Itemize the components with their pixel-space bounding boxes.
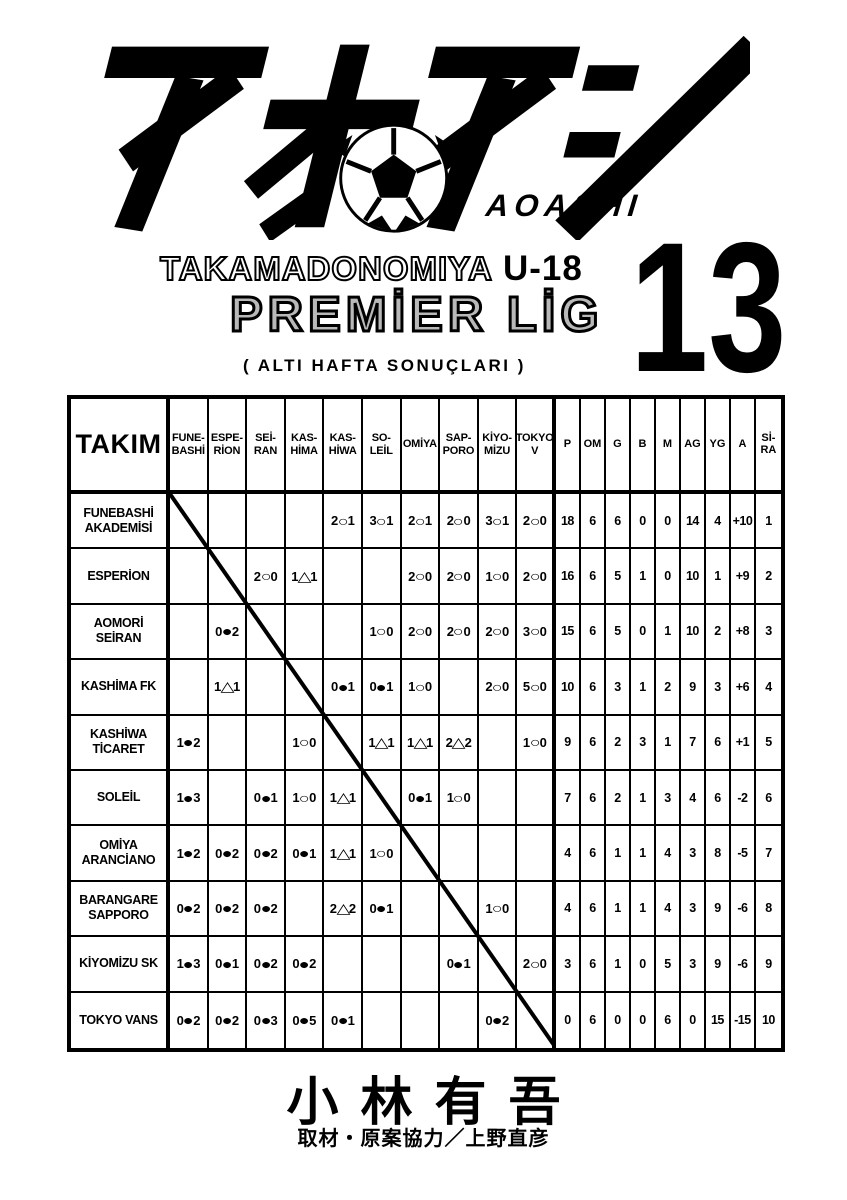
- stat-cell: 10: [756, 993, 781, 1048]
- result-cell: 2○0: [440, 549, 479, 604]
- result-cell: 1●2: [170, 826, 209, 881]
- win-icon: ○: [415, 568, 425, 584]
- stat-cell: 1: [631, 826, 656, 881]
- stat-cell: 15: [706, 993, 731, 1048]
- result-cell: 1○0: [402, 660, 441, 715]
- result-cell: 0●2: [170, 993, 209, 1048]
- loss-icon: ●: [299, 956, 309, 972]
- result-cell: 1△1: [324, 771, 363, 826]
- win-icon: ○: [415, 679, 425, 695]
- stat-cell: 4: [756, 660, 781, 715]
- stat-cell: +1: [731, 716, 756, 771]
- result-cell: 0●1: [247, 771, 286, 826]
- result-cell: 2○0: [440, 494, 479, 549]
- result-cell: [324, 549, 363, 604]
- opponent-header: ESPE- RİON: [209, 399, 248, 494]
- win-icon: ○: [492, 900, 502, 916]
- result-cell: [402, 882, 441, 937]
- diagonal-cell: [440, 882, 479, 937]
- result-cell: [247, 716, 286, 771]
- stat-header: B: [631, 399, 656, 494]
- stat-cell: -15: [731, 993, 756, 1048]
- stat-cell: 10: [681, 549, 706, 604]
- opponent-header: SAP- PORO: [440, 399, 479, 494]
- win-icon: ○: [529, 513, 539, 529]
- stat-header: M: [656, 399, 681, 494]
- team-name-cell: BARANGARE SAPPORO: [71, 882, 170, 937]
- stat-cell: 8: [756, 882, 781, 937]
- league-name: PREMİER LİG: [230, 287, 604, 343]
- stat-cell: 5: [656, 937, 681, 992]
- stat-cell: 3: [631, 716, 656, 771]
- stat-cell: 4: [656, 826, 681, 881]
- win-icon: ○: [529, 956, 539, 972]
- stat-cell: -6: [731, 937, 756, 992]
- result-cell: 2△2: [440, 716, 479, 771]
- stat-cell: 9: [556, 716, 581, 771]
- stat-header: P: [556, 399, 581, 494]
- stat-cell: 6: [606, 494, 631, 549]
- result-cell: 3○1: [479, 494, 518, 549]
- loss-icon: ●: [453, 956, 463, 972]
- win-icon: ○: [492, 568, 502, 584]
- result-cell: [247, 660, 286, 715]
- stat-cell: 18: [556, 494, 581, 549]
- stat-cell: -5: [731, 826, 756, 881]
- win-icon: ○: [529, 623, 539, 639]
- result-cell: 3○1: [363, 494, 402, 549]
- stat-cell: 4: [556, 826, 581, 881]
- volume-number: 13: [630, 222, 786, 394]
- stat-cell: 1: [656, 605, 681, 660]
- cooperation-credit: 取材・原案協力／上野直彦: [0, 1122, 847, 1151]
- result-cell: [170, 549, 209, 604]
- loss-icon: ●: [222, 900, 232, 916]
- stat-cell: 2: [706, 605, 731, 660]
- stat-cell: 5: [606, 605, 631, 660]
- result-cell: 0●2: [170, 882, 209, 937]
- result-cell: 0●2: [286, 937, 325, 992]
- stat-header: YG: [706, 399, 731, 494]
- result-cell: [286, 605, 325, 660]
- diagonal-cell: [286, 660, 325, 715]
- win-icon: ○: [415, 623, 425, 639]
- result-cell: [209, 494, 248, 549]
- stat-cell: 2: [756, 549, 781, 604]
- opponent-header: FUNE- BASHİ: [170, 399, 209, 494]
- result-cell: 0●1: [324, 660, 363, 715]
- win-icon: ○: [260, 568, 270, 584]
- diagonal-cell: [170, 494, 209, 549]
- stat-cell: 4: [681, 771, 706, 826]
- team-name-cell: KASHİMA FK: [71, 660, 170, 715]
- stat-cell: -2: [731, 771, 756, 826]
- result-cell: [286, 494, 325, 549]
- stat-cell: 4: [656, 882, 681, 937]
- result-cell: 1○0: [363, 826, 402, 881]
- result-cell: 2○0: [517, 549, 556, 604]
- result-cell: [440, 826, 479, 881]
- stat-cell: 3: [681, 882, 706, 937]
- result-cell: [402, 937, 441, 992]
- result-cell: 2○1: [402, 494, 441, 549]
- stat-cell: 8: [706, 826, 731, 881]
- win-icon: ○: [453, 568, 463, 584]
- result-cell: 1○0: [517, 716, 556, 771]
- result-cell: 0●2: [247, 882, 286, 937]
- win-icon: ○: [376, 513, 386, 529]
- loss-icon: ●: [376, 679, 386, 695]
- loss-icon: ●: [183, 956, 193, 972]
- draw-icon: △: [375, 734, 388, 751]
- win-icon: ○: [529, 734, 539, 750]
- loss-icon: ●: [260, 790, 270, 806]
- result-cell: 0●1: [363, 660, 402, 715]
- stat-cell: 1: [656, 716, 681, 771]
- draw-icon: △: [336, 845, 349, 862]
- loss-icon: ●: [222, 956, 232, 972]
- stat-cell: 3: [756, 605, 781, 660]
- stat-cell: +6: [731, 660, 756, 715]
- diagonal-cell: [363, 771, 402, 826]
- result-cell: [479, 716, 518, 771]
- opponent-header: SO- LEİL: [363, 399, 402, 494]
- result-cell: [170, 605, 209, 660]
- result-cell: 2○1: [324, 494, 363, 549]
- series-name: TAKAMADONOMIYA: [160, 250, 493, 287]
- win-icon: ○: [492, 623, 502, 639]
- loss-icon: ●: [337, 1012, 347, 1028]
- result-cell: 0●2: [247, 937, 286, 992]
- stat-cell: 2: [606, 716, 631, 771]
- result-cell: [440, 993, 479, 1048]
- stat-cell: 6: [581, 494, 606, 549]
- result-cell: 2○0: [479, 660, 518, 715]
- result-cell: 2○0: [402, 549, 441, 604]
- stat-header: G: [606, 399, 631, 494]
- stat-cell: 2: [656, 660, 681, 715]
- result-cell: 0●2: [479, 993, 518, 1048]
- result-cell: [286, 882, 325, 937]
- stat-cell: 6: [656, 993, 681, 1048]
- loss-icon: ●: [260, 1012, 270, 1028]
- stat-cell: 9: [706, 882, 731, 937]
- loss-icon: ●: [415, 790, 425, 806]
- win-icon: ○: [415, 513, 425, 529]
- result-cell: [517, 882, 556, 937]
- result-cell: 1△1: [286, 549, 325, 604]
- stat-header: Sİ- RA: [756, 399, 781, 494]
- stat-cell: 6: [581, 826, 606, 881]
- result-cell: [517, 771, 556, 826]
- result-cell: [209, 771, 248, 826]
- stat-cell: 0: [606, 993, 631, 1048]
- manga-inner-page: AOASHI TAKAMADONOMIYAU-18 PREMİER LİG ( …: [0, 0, 847, 1200]
- loss-icon: ●: [376, 900, 386, 916]
- stat-cell: 1: [606, 882, 631, 937]
- result-cell: [363, 937, 402, 992]
- result-cell: 0●2: [209, 826, 248, 881]
- stat-cell: 0: [656, 494, 681, 549]
- result-cell: 0●1: [440, 937, 479, 992]
- opponent-header: TOKYO V: [517, 399, 556, 494]
- stat-cell: 6: [706, 771, 731, 826]
- result-cell: [363, 549, 402, 604]
- loss-icon: ●: [260, 900, 270, 916]
- stat-cell: 5: [756, 716, 781, 771]
- stat-cell: 0: [556, 993, 581, 1048]
- loss-icon: ●: [183, 790, 193, 806]
- result-cell: 3○0: [517, 605, 556, 660]
- draw-icon: △: [297, 568, 310, 585]
- stat-cell: 6: [706, 716, 731, 771]
- stat-cell: 7: [556, 771, 581, 826]
- result-cell: [363, 993, 402, 1048]
- result-cell: 1●3: [170, 771, 209, 826]
- stat-cell: 3: [656, 771, 681, 826]
- stat-cell: 2: [606, 771, 631, 826]
- division-label: U-18: [503, 249, 583, 288]
- result-cell: 0●1: [324, 993, 363, 1048]
- result-cell: 0●2: [209, 605, 248, 660]
- team-name-cell: AOMORİ SEİRAN: [71, 605, 170, 660]
- stat-cell: 6: [581, 549, 606, 604]
- stat-cell: 7: [756, 826, 781, 881]
- result-cell: 1○0: [479, 882, 518, 937]
- stat-cell: 0: [656, 549, 681, 604]
- result-cell: 1○0: [286, 716, 325, 771]
- team-name-cell: OMİYA ARANCİANO: [71, 826, 170, 881]
- result-cell: 1△1: [363, 716, 402, 771]
- result-cell: [170, 660, 209, 715]
- loss-icon: ●: [337, 679, 347, 695]
- result-cell: 2○0: [517, 937, 556, 992]
- stat-cell: 0: [631, 605, 656, 660]
- result-cell: [479, 826, 518, 881]
- result-cell: 1△1: [402, 716, 441, 771]
- loss-icon: ●: [222, 623, 232, 639]
- result-cell: 0●1: [286, 826, 325, 881]
- opponent-header: KİYO- MİZU: [479, 399, 518, 494]
- result-cell: 0●5: [286, 993, 325, 1048]
- stat-cell: 10: [556, 660, 581, 715]
- corner-header: TAKIM: [71, 399, 170, 494]
- stat-cell: 6: [581, 993, 606, 1048]
- stat-cell: +8: [731, 605, 756, 660]
- result-cell: [440, 660, 479, 715]
- stat-cell: 1: [631, 882, 656, 937]
- loss-icon: ●: [492, 1012, 502, 1028]
- team-name-cell: KASHİWA TİCARET: [71, 716, 170, 771]
- result-cell: [517, 826, 556, 881]
- result-cell: 2△2: [324, 882, 363, 937]
- result-cell: [209, 716, 248, 771]
- team-name-cell: SOLEİL: [71, 771, 170, 826]
- win-icon: ○: [376, 845, 386, 861]
- stat-cell: 1: [631, 549, 656, 604]
- result-cell: 2○0: [517, 494, 556, 549]
- result-cell: [247, 494, 286, 549]
- stat-cell: 0: [631, 494, 656, 549]
- stat-cell: 1: [606, 937, 631, 992]
- loss-icon: ●: [183, 734, 193, 750]
- win-icon: ○: [529, 568, 539, 584]
- result-cell: 2○0: [479, 605, 518, 660]
- opponent-header: SEİ- RAN: [247, 399, 286, 494]
- stat-cell: -6: [731, 882, 756, 937]
- stat-cell: 6: [581, 660, 606, 715]
- result-cell: 0●3: [247, 993, 286, 1048]
- stat-cell: 1: [631, 660, 656, 715]
- result-cell: 1○0: [479, 549, 518, 604]
- win-icon: ○: [453, 790, 463, 806]
- stat-cell: 0: [631, 993, 656, 1048]
- stat-cell: 3: [681, 937, 706, 992]
- diagonal-cell: [209, 549, 248, 604]
- draw-icon: △: [220, 678, 233, 695]
- stat-cell: 4: [556, 882, 581, 937]
- stat-cell: 5: [606, 549, 631, 604]
- result-cell: 1●3: [170, 937, 209, 992]
- stat-cell: 15: [556, 605, 581, 660]
- team-name-cell: KİYOMİZU SK: [71, 937, 170, 992]
- result-cell: 0●1: [363, 882, 402, 937]
- result-cell: 1●2: [170, 716, 209, 771]
- stat-cell: 0: [681, 993, 706, 1048]
- result-cell: [479, 771, 518, 826]
- loss-icon: ●: [299, 1012, 309, 1028]
- stat-header: AG: [681, 399, 706, 494]
- result-cell: 0●1: [402, 771, 441, 826]
- result-cell: 1○0: [363, 605, 402, 660]
- win-icon: ○: [492, 513, 502, 529]
- draw-icon: △: [336, 789, 349, 806]
- result-cell: [402, 993, 441, 1048]
- stat-cell: 6: [581, 716, 606, 771]
- result-cell: 0●2: [247, 826, 286, 881]
- result-cell: 5○0: [517, 660, 556, 715]
- draw-icon: △: [413, 734, 426, 751]
- win-icon: ○: [492, 679, 502, 695]
- draw-icon: △: [452, 734, 465, 751]
- stat-cell: 10: [681, 605, 706, 660]
- stat-cell: 16: [556, 549, 581, 604]
- stat-cell: 1: [706, 549, 731, 604]
- stat-cell: 1: [606, 826, 631, 881]
- loss-icon: ●: [183, 900, 193, 916]
- diagonal-cell: [517, 993, 556, 1048]
- stat-cell: 0: [631, 937, 656, 992]
- team-name-cell: ESPERİON: [71, 549, 170, 604]
- stat-cell: 9: [756, 937, 781, 992]
- stat-cell: 1: [631, 771, 656, 826]
- diagonal-cell: [402, 826, 441, 881]
- stat-cell: +9: [731, 549, 756, 604]
- result-cell: 0●2: [209, 882, 248, 937]
- diagonal-cell: [479, 937, 518, 992]
- loss-icon: ●: [299, 845, 309, 861]
- win-icon: ○: [299, 734, 309, 750]
- win-icon: ○: [453, 623, 463, 639]
- loss-icon: ●: [222, 1012, 232, 1028]
- loss-icon: ●: [222, 845, 232, 861]
- soccer-ball-icon: [335, 112, 453, 231]
- stat-header: OM: [581, 399, 606, 494]
- result-cell: [324, 605, 363, 660]
- opponent-header: KAS- HİMA: [286, 399, 325, 494]
- loss-icon: ●: [183, 1012, 193, 1028]
- stat-cell: 7: [681, 716, 706, 771]
- result-cell: 1○0: [440, 771, 479, 826]
- stat-cell: 9: [706, 937, 731, 992]
- result-cell: 2○0: [247, 549, 286, 604]
- win-icon: ○: [376, 623, 386, 639]
- standings-table: TAKIMFUNE- BASHİESPE- RİONSEİ- RANKAS- H…: [67, 395, 785, 1052]
- stat-cell: 3: [706, 660, 731, 715]
- league-title-line1: TAKAMADONOMIYAU-18: [160, 249, 583, 289]
- stat-cell: 3: [556, 937, 581, 992]
- result-cell: 2○0: [440, 605, 479, 660]
- team-name-cell: TOKYO VANS: [71, 993, 170, 1048]
- aoashi-romaji-label: AOASHI: [484, 188, 644, 224]
- win-icon: ○: [529, 679, 539, 695]
- result-cell: [324, 937, 363, 992]
- stat-cell: 6: [756, 771, 781, 826]
- opponent-header: OMİYA: [402, 399, 441, 494]
- result-cell: 0●2: [209, 993, 248, 1048]
- stat-header: A: [731, 399, 756, 494]
- stat-cell: 3: [606, 660, 631, 715]
- diagonal-cell: [324, 716, 363, 771]
- win-icon: ○: [299, 790, 309, 806]
- stat-cell: 6: [581, 937, 606, 992]
- diagonal-cell: [247, 605, 286, 660]
- loss-icon: ●: [260, 845, 270, 861]
- result-cell: 1△1: [209, 660, 248, 715]
- draw-icon: △: [336, 900, 349, 917]
- win-icon: ○: [453, 513, 463, 529]
- result-cell: 0●1: [209, 937, 248, 992]
- result-cell: 2○0: [402, 605, 441, 660]
- opponent-header: KAS- HİWA: [324, 399, 363, 494]
- result-cell: 1○0: [286, 771, 325, 826]
- stat-cell: 6: [581, 605, 606, 660]
- loss-icon: ●: [260, 956, 270, 972]
- stat-cell: 1: [756, 494, 781, 549]
- win-icon: ○: [337, 513, 347, 529]
- stat-cell: +10: [731, 494, 756, 549]
- stat-cell: 6: [581, 882, 606, 937]
- team-name-cell: FUNEBASHİ AKADEMİSİ: [71, 494, 170, 549]
- stat-cell: 4: [706, 494, 731, 549]
- stat-cell: 6: [581, 771, 606, 826]
- stat-cell: 9: [681, 660, 706, 715]
- result-cell: 1△1: [324, 826, 363, 881]
- results-note: ( ALTI HAFTA SONUÇLARI ): [243, 356, 526, 376]
- stat-cell: 14: [681, 494, 706, 549]
- loss-icon: ●: [183, 845, 193, 861]
- stat-cell: 3: [681, 826, 706, 881]
